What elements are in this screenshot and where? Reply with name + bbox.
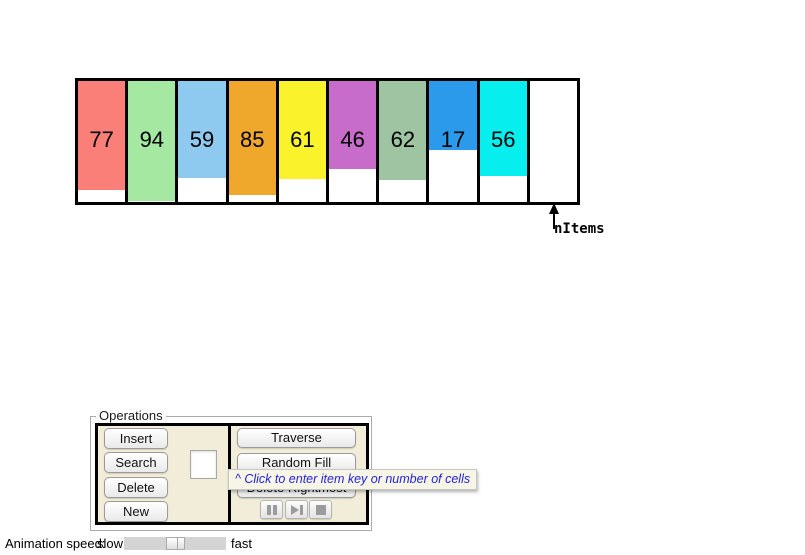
cell-value: 77 (78, 127, 125, 153)
pause-icon (266, 505, 278, 515)
speed-slow-label: slow (97, 536, 123, 551)
tooltip: ^ Click to enter item key or number of c… (228, 469, 477, 490)
traverse-button[interactable]: Traverse (237, 428, 356, 448)
array-cell: 62 (379, 81, 429, 202)
new-button[interactable]: New (104, 501, 168, 522)
stop-button[interactable] (309, 500, 332, 519)
item-key-input[interactable] (190, 450, 217, 479)
array-cell: 94 (128, 81, 178, 202)
nitems-label: nItems (554, 221, 605, 237)
operations-group-title: Operations (96, 408, 166, 424)
cell-value: 94 (128, 127, 175, 153)
cell-value: 59 (178, 127, 225, 153)
speed-slider[interactable] (124, 537, 226, 550)
value-bar (329, 81, 376, 169)
array-cell: 77 (78, 81, 128, 202)
array-cell (530, 81, 577, 202)
applet-window: 779459856146621756 nItems Operations Ins… (0, 0, 805, 555)
insert-button[interactable]: Insert (104, 428, 168, 449)
step-forward-button[interactable] (285, 500, 308, 519)
stop-icon (316, 505, 326, 515)
delete-button[interactable]: Delete (104, 477, 168, 498)
array-cell: 85 (229, 81, 279, 202)
array-cell: 61 (279, 81, 329, 202)
tooltip-text: ^ Click to enter item key or number of c… (235, 472, 470, 486)
cell-value: 17 (429, 127, 476, 153)
array-cell: 17 (429, 81, 479, 202)
array-cell: 59 (178, 81, 228, 202)
speed-fast-label: fast (231, 536, 252, 551)
animation-speed-label: Animation speed: (5, 536, 105, 551)
cell-value: 56 (480, 127, 527, 153)
cell-value: 46 (329, 127, 376, 153)
step-forward-icon (291, 505, 303, 515)
array-visualization: 779459856146621756 (75, 78, 580, 205)
array-cell: 56 (480, 81, 530, 202)
cell-value: 85 (229, 127, 276, 153)
cell-value: 62 (379, 127, 426, 153)
search-button[interactable]: Search (104, 452, 168, 473)
speed-slider-thumb[interactable] (166, 537, 185, 550)
array-cell: 46 (329, 81, 379, 202)
pause-button[interactable] (260, 500, 283, 519)
cell-value: 61 (279, 127, 326, 153)
